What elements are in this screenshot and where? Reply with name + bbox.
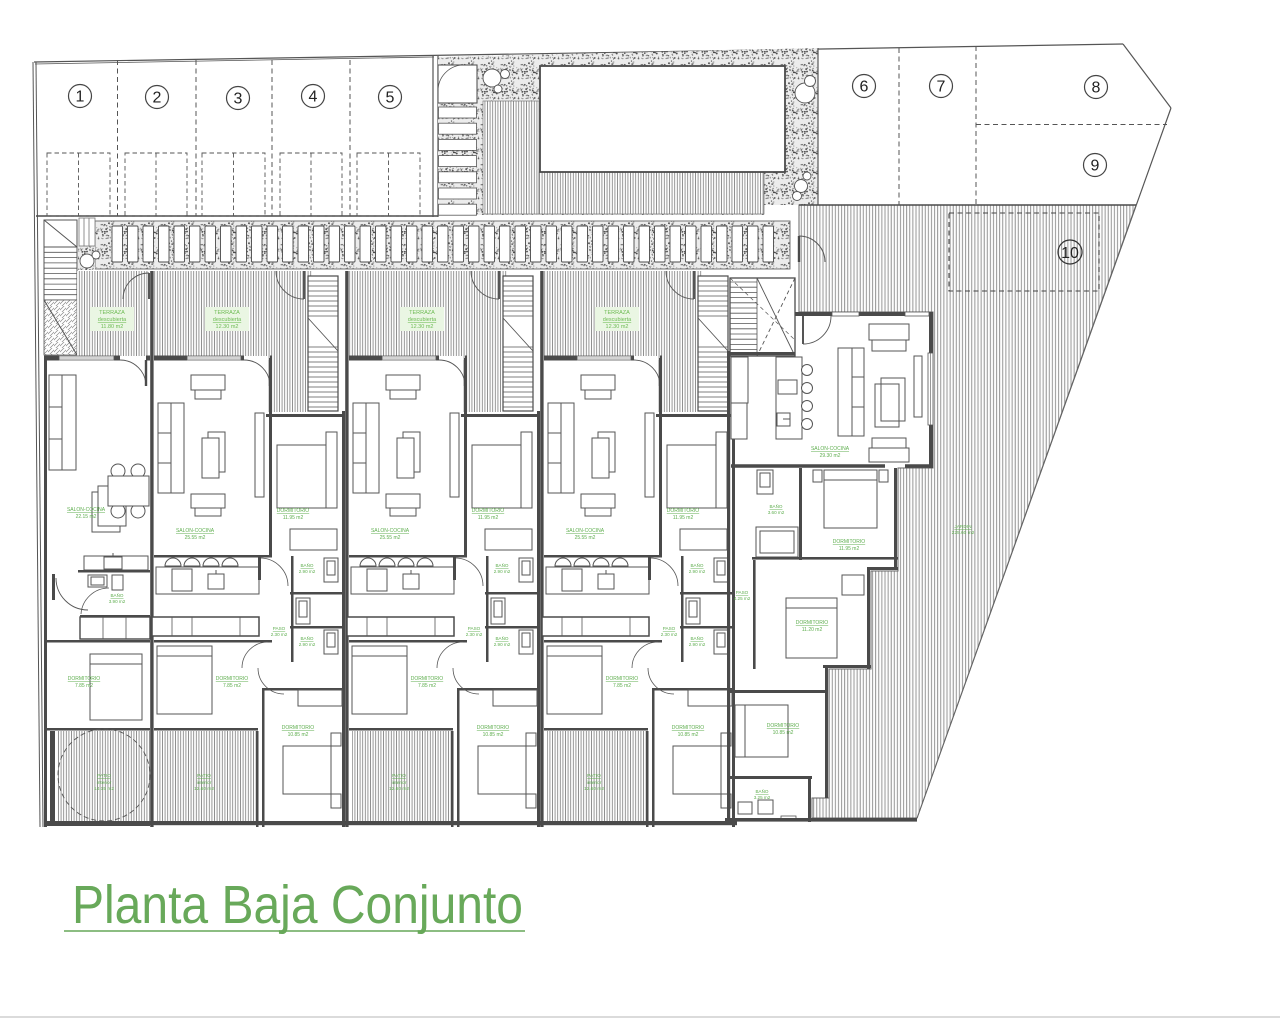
svg-text:4: 4 <box>309 89 318 106</box>
svg-text:25.55 m2: 25.55 m2 <box>380 535 401 541</box>
svg-text:DORMITORIO: DORMITORIO <box>277 508 310 514</box>
svg-text:DORMITORIO: DORMITORIO <box>216 676 249 682</box>
svg-text:2.90 m2: 2.90 m2 <box>299 569 316 574</box>
svg-text:interior: interior <box>97 780 112 786</box>
svg-text:11.95 m2: 11.95 m2 <box>839 546 860 552</box>
svg-text:descubierta: descubierta <box>98 317 127 323</box>
svg-text:PATIO: PATIO <box>587 773 601 779</box>
svg-text:10.85 m2: 10.85 m2 <box>483 732 504 738</box>
svg-text:7.85 m2: 7.85 m2 <box>223 683 241 689</box>
svg-text:2.90 m2: 2.90 m2 <box>689 642 706 647</box>
svg-text:10: 10 <box>1061 245 1079 262</box>
svg-text:DORMITORIO: DORMITORIO <box>667 508 700 514</box>
svg-text:7.85 m2: 7.85 m2 <box>613 683 631 689</box>
svg-text:BAÑO: BAÑO <box>690 562 703 568</box>
svg-text:29.30 m2: 29.30 m2 <box>820 453 841 459</box>
svg-text:DORMITORIO: DORMITORIO <box>411 676 444 682</box>
svg-text:interior: interior <box>197 780 212 786</box>
svg-text:1: 1 <box>76 89 85 106</box>
svg-text:SALON-COCINA: SALON-COCINA <box>566 528 605 534</box>
svg-text:4.25 m2: 4.25 m2 <box>734 596 751 601</box>
svg-text:descubierta: descubierta <box>408 317 437 323</box>
svg-text:TERRAZA: TERRAZA <box>604 310 630 316</box>
svg-text:DORMITORIO: DORMITORIO <box>68 676 101 682</box>
svg-text:BAÑO: BAÑO <box>300 562 313 568</box>
svg-text:22.15 m2: 22.15 m2 <box>76 514 97 520</box>
svg-text:DORMITORIO: DORMITORIO <box>796 620 829 626</box>
svg-text:7.85 m2: 7.85 m2 <box>75 683 93 689</box>
svg-text:2.30 m2: 2.30 m2 <box>466 632 483 637</box>
svg-text:SALON-COCINA: SALON-COCINA <box>811 446 850 452</box>
svg-text:2.30 m2: 2.30 m2 <box>661 632 678 637</box>
svg-text:JARDIN: JARDIN <box>954 524 972 530</box>
svg-text:BAÑO: BAÑO <box>755 788 768 794</box>
svg-text:12.30 m2: 12.30 m2 <box>411 324 434 330</box>
svg-text:PASO: PASO <box>273 626 286 631</box>
svg-text:DORMITORIO: DORMITORIO <box>767 723 800 729</box>
svg-text:11.20 m2: 11.20 m2 <box>802 627 823 633</box>
svg-text:interior: interior <box>587 780 602 786</box>
svg-text:BAÑO: BAÑO <box>769 503 782 509</box>
svg-text:SALON-COCINA: SALON-COCINA <box>371 528 410 534</box>
svg-text:10.85 m2: 10.85 m2 <box>773 730 794 736</box>
svg-text:descubierta: descubierta <box>213 317 242 323</box>
svg-text:12.30 m2: 12.30 m2 <box>606 324 629 330</box>
svg-text:3.60 m2: 3.60 m2 <box>768 510 785 515</box>
svg-text:11.95 m2: 11.95 m2 <box>283 515 304 521</box>
svg-text:BAÑO: BAÑO <box>300 635 313 641</box>
svg-text:PATIO: PATIO <box>97 773 111 779</box>
svg-text:9: 9 <box>1091 158 1100 175</box>
svg-text:BAÑO: BAÑO <box>495 635 508 641</box>
svg-text:TERRAZA: TERRAZA <box>214 310 240 316</box>
svg-text:7: 7 <box>937 79 946 96</box>
svg-text:25.55 m2: 25.55 m2 <box>185 535 206 541</box>
svg-text:25.55 m2: 25.55 m2 <box>575 535 596 541</box>
svg-text:2.90 m2: 2.90 m2 <box>494 569 511 574</box>
svg-text:SALON-COCINA: SALON-COCINA <box>176 528 215 534</box>
svg-text:2.30 m2: 2.30 m2 <box>271 632 288 637</box>
svg-text:225.60 m2: 225.60 m2 <box>952 530 975 536</box>
svg-text:PASO: PASO <box>468 626 481 631</box>
svg-text:BAÑO: BAÑO <box>495 562 508 568</box>
svg-text:12.60 m2: 12.60 m2 <box>389 786 409 792</box>
svg-text:2.90 m2: 2.90 m2 <box>689 569 706 574</box>
svg-text:2: 2 <box>153 90 162 107</box>
svg-text:DORMITORIO: DORMITORIO <box>606 676 639 682</box>
svg-text:DORMITORIO: DORMITORIO <box>833 539 866 545</box>
svg-text:PATIO: PATIO <box>392 773 406 779</box>
svg-text:DORMITORIO: DORMITORIO <box>282 725 315 731</box>
svg-text:PATIO: PATIO <box>197 773 211 779</box>
svg-text:5: 5 <box>386 90 395 107</box>
svg-text:12.60 m2: 12.60 m2 <box>584 786 604 792</box>
svg-text:11.80 m2: 11.80 m2 <box>101 324 124 330</box>
svg-text:8: 8 <box>1092 80 1101 97</box>
svg-text:PASO: PASO <box>663 626 676 631</box>
svg-text:2.90 m2: 2.90 m2 <box>299 642 316 647</box>
svg-text:11.95 m2: 11.95 m2 <box>478 515 499 521</box>
svg-text:Planta Baja Conjunto: Planta Baja Conjunto <box>72 875 523 935</box>
svg-text:interior: interior <box>392 780 407 786</box>
svg-text:BAÑO: BAÑO <box>690 635 703 641</box>
svg-text:DORMITORIO: DORMITORIO <box>477 725 510 731</box>
svg-text:TERRAZA: TERRAZA <box>409 310 435 316</box>
svg-text:12.30 m2: 12.30 m2 <box>216 324 239 330</box>
svg-text:descubierta: descubierta <box>603 317 632 323</box>
svg-text:7.85 m2: 7.85 m2 <box>418 683 436 689</box>
svg-text:11.95 m2: 11.95 m2 <box>673 515 694 521</box>
svg-text:2.90 m2: 2.90 m2 <box>494 642 511 647</box>
svg-text:DORMITORIO: DORMITORIO <box>672 725 705 731</box>
svg-text:6: 6 <box>860 79 869 96</box>
svg-text:10.85 m2: 10.85 m2 <box>678 732 699 738</box>
svg-text:3.25 m2: 3.25 m2 <box>754 795 771 800</box>
svg-text:3.90 m2: 3.90 m2 <box>109 599 126 604</box>
svg-text:DORMITORIO: DORMITORIO <box>472 508 505 514</box>
svg-text:SALON-COCINA: SALON-COCINA <box>67 507 106 513</box>
svg-text:14.15 m2: 14.15 m2 <box>94 786 114 792</box>
svg-text:PASO: PASO <box>736 590 749 595</box>
svg-text:TERRAZA: TERRAZA <box>99 310 125 316</box>
svg-text:12.60 m2: 12.60 m2 <box>194 786 214 792</box>
svg-text:BAÑO: BAÑO <box>110 592 123 598</box>
svg-text:10.85 m2: 10.85 m2 <box>288 732 309 738</box>
svg-text:3: 3 <box>234 91 243 108</box>
